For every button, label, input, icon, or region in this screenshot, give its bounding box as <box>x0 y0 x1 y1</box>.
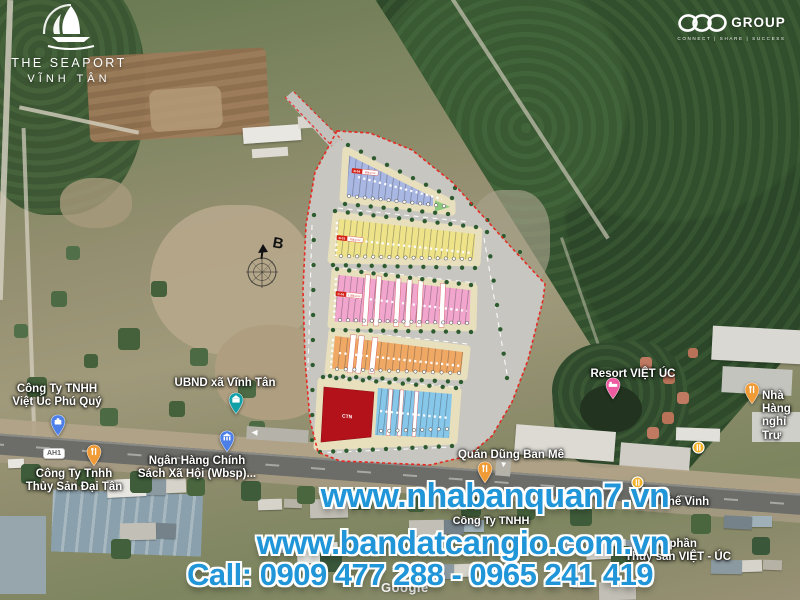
csc-group-logo: GROUP CONNECT | SHARE | SUCCESS <box>669 10 794 41</box>
seaport-logo-name: THE SEAPORT <box>4 56 134 70</box>
hotel-pin[interactable] <box>605 377 621 405</box>
building <box>750 516 772 527</box>
building <box>120 523 156 541</box>
watermark-website-1: www.nhabanquan7.vn <box>321 477 670 516</box>
csc-loops-icon <box>677 10 729 34</box>
briefcase-pin[interactable] <box>50 414 66 442</box>
csc-logo-name: GROUP <box>731 15 786 30</box>
building <box>284 499 302 509</box>
svg-text:B-04: B-04 <box>353 169 360 174</box>
government-pin[interactable] <box>228 392 244 420</box>
svg-text:C-04: C-04 <box>337 292 344 297</box>
roadside-trees <box>0 0 2 2</box>
place-label-thuy-san-dai-tan[interactable]: Công Ty Tnhh Thủy Sản Đại Tân <box>26 468 123 494</box>
place-label-ubnd-vinh-tan[interactable]: UBND xã Vĩnh Tân <box>175 377 276 390</box>
compass-north-label: B <box>271 234 285 253</box>
road-badge-ah1: AH1 <box>43 448 65 459</box>
sand-patch <box>60 178 132 228</box>
place-label-nha-hang[interactable]: Nhà Hàng nghỉ Trư <box>762 390 800 443</box>
restaurant-pin[interactable] <box>744 382 760 410</box>
ctn-label: CTN <box>342 414 353 421</box>
building <box>8 458 24 468</box>
compass-north: B <box>238 228 302 299</box>
place-label-resort-viet-uc[interactable]: Resort VIỆT ÚC <box>591 368 676 381</box>
csc-logo-tagline: CONNECT | SHARE | SUCCESS <box>669 36 794 41</box>
seaport-logo: THE SEAPORT VĨNH TÂN <box>4 4 134 85</box>
restaurant-pin[interactable] <box>86 444 102 472</box>
farm-field <box>149 86 224 133</box>
map-canvas[interactable]: ◄ ▼ B-04958.4 m²B-03768.4 m²C-041,358.4 … <box>0 0 800 600</box>
industrial-shed <box>711 326 800 365</box>
bank-pin[interactable] <box>219 430 235 458</box>
place-label-ngan-hang[interactable]: Ngân Hàng Chính Sách Xã Hội (Wbsp)... <box>138 455 256 481</box>
building <box>676 427 720 442</box>
building <box>763 560 782 571</box>
building <box>724 516 753 530</box>
place-label-quan-dung[interactable]: Quán Dũng Ban Mê <box>458 449 564 462</box>
seaport-sail-icon <box>14 4 124 50</box>
master-plan-overlay: B-04958.4 m²B-03768.4 m²C-041,358.4 m²CT… <box>270 85 560 475</box>
watermark-phone: Call: 0909 477 288 - 0965 241 419 <box>187 557 653 593</box>
seaport-logo-location: VĨNH TÂN <box>4 73 134 85</box>
svg-text:B-03: B-03 <box>338 236 345 241</box>
building <box>258 499 282 511</box>
poi-dot-icon[interactable] <box>692 441 705 459</box>
place-label-viet-uc-phu-quy[interactable]: Công Ty TNHH Việt Úc Phú Quý <box>12 383 101 409</box>
industrial-shed <box>0 516 46 594</box>
